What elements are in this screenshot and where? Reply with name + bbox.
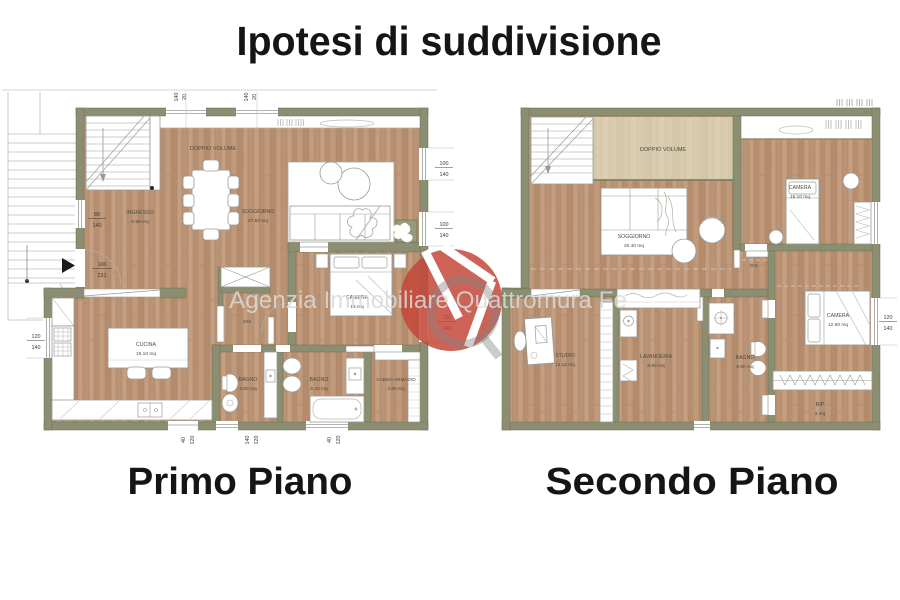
svg-text:20: 20 bbox=[182, 94, 188, 100]
svg-text:STUDIO: STUDIO bbox=[555, 353, 575, 359]
svg-text:Ipotesi di suddivisione: Ipotesi di suddivisione bbox=[237, 18, 662, 64]
svg-text:INGRESSO: INGRESSO bbox=[126, 210, 153, 216]
svg-text:140: 140 bbox=[93, 223, 102, 229]
svg-text:CUCINA: CUCINA bbox=[136, 342, 156, 348]
svg-text:140: 140 bbox=[245, 436, 251, 445]
svg-text:231: 231 bbox=[98, 273, 107, 279]
svg-text:CAMERA: CAMERA bbox=[827, 313, 850, 319]
svg-text:40: 40 bbox=[327, 437, 333, 443]
svg-text:19.10 mq: 19.10 mq bbox=[136, 351, 156, 357]
svg-text:100: 100 bbox=[440, 222, 449, 228]
svg-text:140: 140 bbox=[440, 172, 449, 178]
svg-text:80: 80 bbox=[94, 212, 100, 218]
svg-text:3.90 mq: 3.90 mq bbox=[387, 386, 405, 392]
svg-text:140: 140 bbox=[32, 345, 41, 351]
svg-text:6.90 mq: 6.90 mq bbox=[736, 364, 754, 370]
svg-text:BAGNO: BAGNO bbox=[239, 377, 258, 383]
svg-text:120: 120 bbox=[190, 436, 196, 445]
svg-text:100: 100 bbox=[440, 161, 449, 167]
svg-text:3 mq: 3 mq bbox=[815, 411, 826, 417]
svg-text:140: 140 bbox=[174, 93, 180, 102]
svg-text:120: 120 bbox=[884, 315, 893, 321]
svg-text:Agenzia Immobiliare Quattromur: Agenzia Immobiliare Quattromura Fe bbox=[229, 287, 627, 314]
svg-text:5.98 mq: 5.98 mq bbox=[131, 219, 149, 225]
svg-text:DOPPIO VOLUME: DOPPIO VOLUME bbox=[640, 147, 686, 153]
svg-text:SOGGIORNO: SOGGIORNO bbox=[242, 209, 275, 215]
svg-text:20.40 mq: 20.40 mq bbox=[624, 243, 644, 249]
svg-text:Primo Piano: Primo Piano bbox=[128, 461, 353, 503]
svg-text:140: 140 bbox=[440, 233, 449, 239]
svg-text:120: 120 bbox=[32, 334, 41, 340]
svg-text:CAMERA: CAMERA bbox=[789, 185, 812, 191]
svg-text:DIS.: DIS. bbox=[243, 319, 252, 325]
svg-text:DIS: DIS bbox=[750, 263, 758, 269]
svg-text:LAVANDERIA: LAVANDERIA bbox=[640, 354, 673, 360]
svg-text:CABINA ARMADIO: CABINA ARMADIO bbox=[376, 377, 416, 382]
svg-text:13.15 mq: 13.15 mq bbox=[555, 362, 575, 368]
svg-text:5.20 mq: 5.20 mq bbox=[310, 386, 328, 392]
svg-text:16.10 mq: 16.10 mq bbox=[790, 194, 810, 200]
svg-text:BAGNO: BAGNO bbox=[736, 355, 755, 361]
svg-text:120: 120 bbox=[254, 436, 260, 445]
svg-text:100: 100 bbox=[98, 262, 107, 268]
svg-text:DOPPIO VOLUME: DOPPIO VOLUME bbox=[190, 146, 236, 152]
svg-text:3.80 mq: 3.80 mq bbox=[239, 386, 257, 392]
svg-text:140: 140 bbox=[884, 326, 893, 332]
svg-text:12.90 mq: 12.90 mq bbox=[828, 322, 848, 328]
svg-text:37.50 mq: 37.50 mq bbox=[248, 218, 268, 224]
svg-text:140: 140 bbox=[244, 93, 250, 102]
svg-text:SOGGIORNO: SOGGIORNO bbox=[618, 234, 651, 240]
svg-text:20: 20 bbox=[252, 94, 258, 100]
svg-text:Secondo Piano: Secondo Piano bbox=[546, 461, 839, 503]
svg-text:BAGNO: BAGNO bbox=[310, 377, 329, 383]
svg-text:8.90 mq: 8.90 mq bbox=[647, 363, 665, 369]
svg-text:120: 120 bbox=[336, 436, 342, 445]
svg-text:40: 40 bbox=[181, 437, 187, 443]
svg-text:RIP: RIP bbox=[816, 402, 825, 408]
